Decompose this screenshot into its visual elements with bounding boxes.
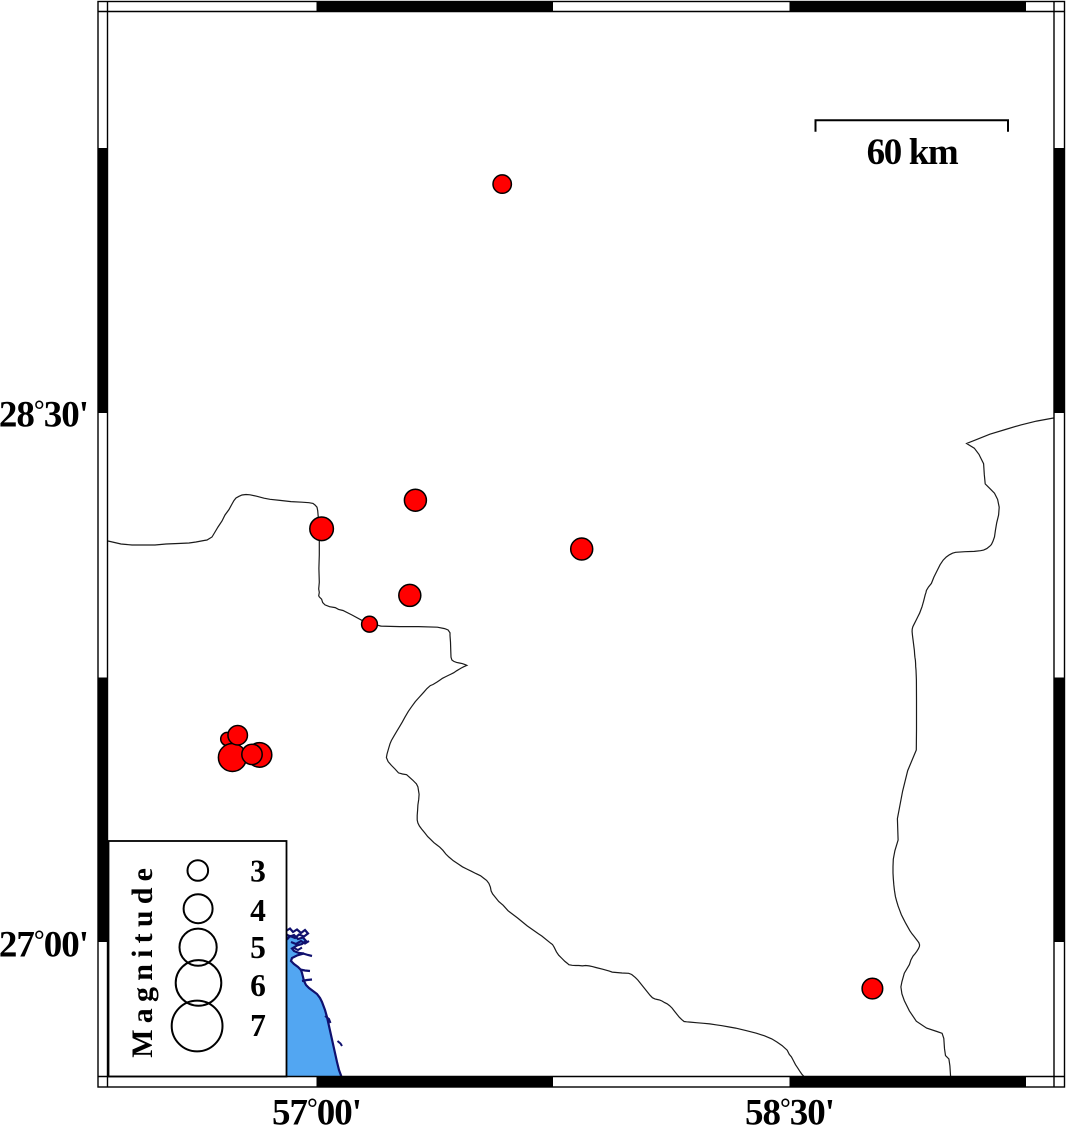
svg-text:Magnitude: Magnitude: [126, 862, 159, 1058]
svg-text:6: 6: [250, 968, 266, 1003]
svg-text:3: 3: [250, 854, 266, 889]
svg-text:58°30': 58°30': [745, 1093, 834, 1126]
svg-text:28°30': 28°30': [0, 395, 88, 436]
svg-text:57°00': 57°00': [272, 1093, 361, 1126]
svg-text:7: 7: [250, 1008, 266, 1043]
svg-text:4: 4: [250, 893, 266, 928]
svg-text:60 km: 60 km: [867, 132, 959, 173]
svg-text:27°00': 27°00': [0, 925, 88, 966]
svg-text:5: 5: [250, 930, 266, 965]
